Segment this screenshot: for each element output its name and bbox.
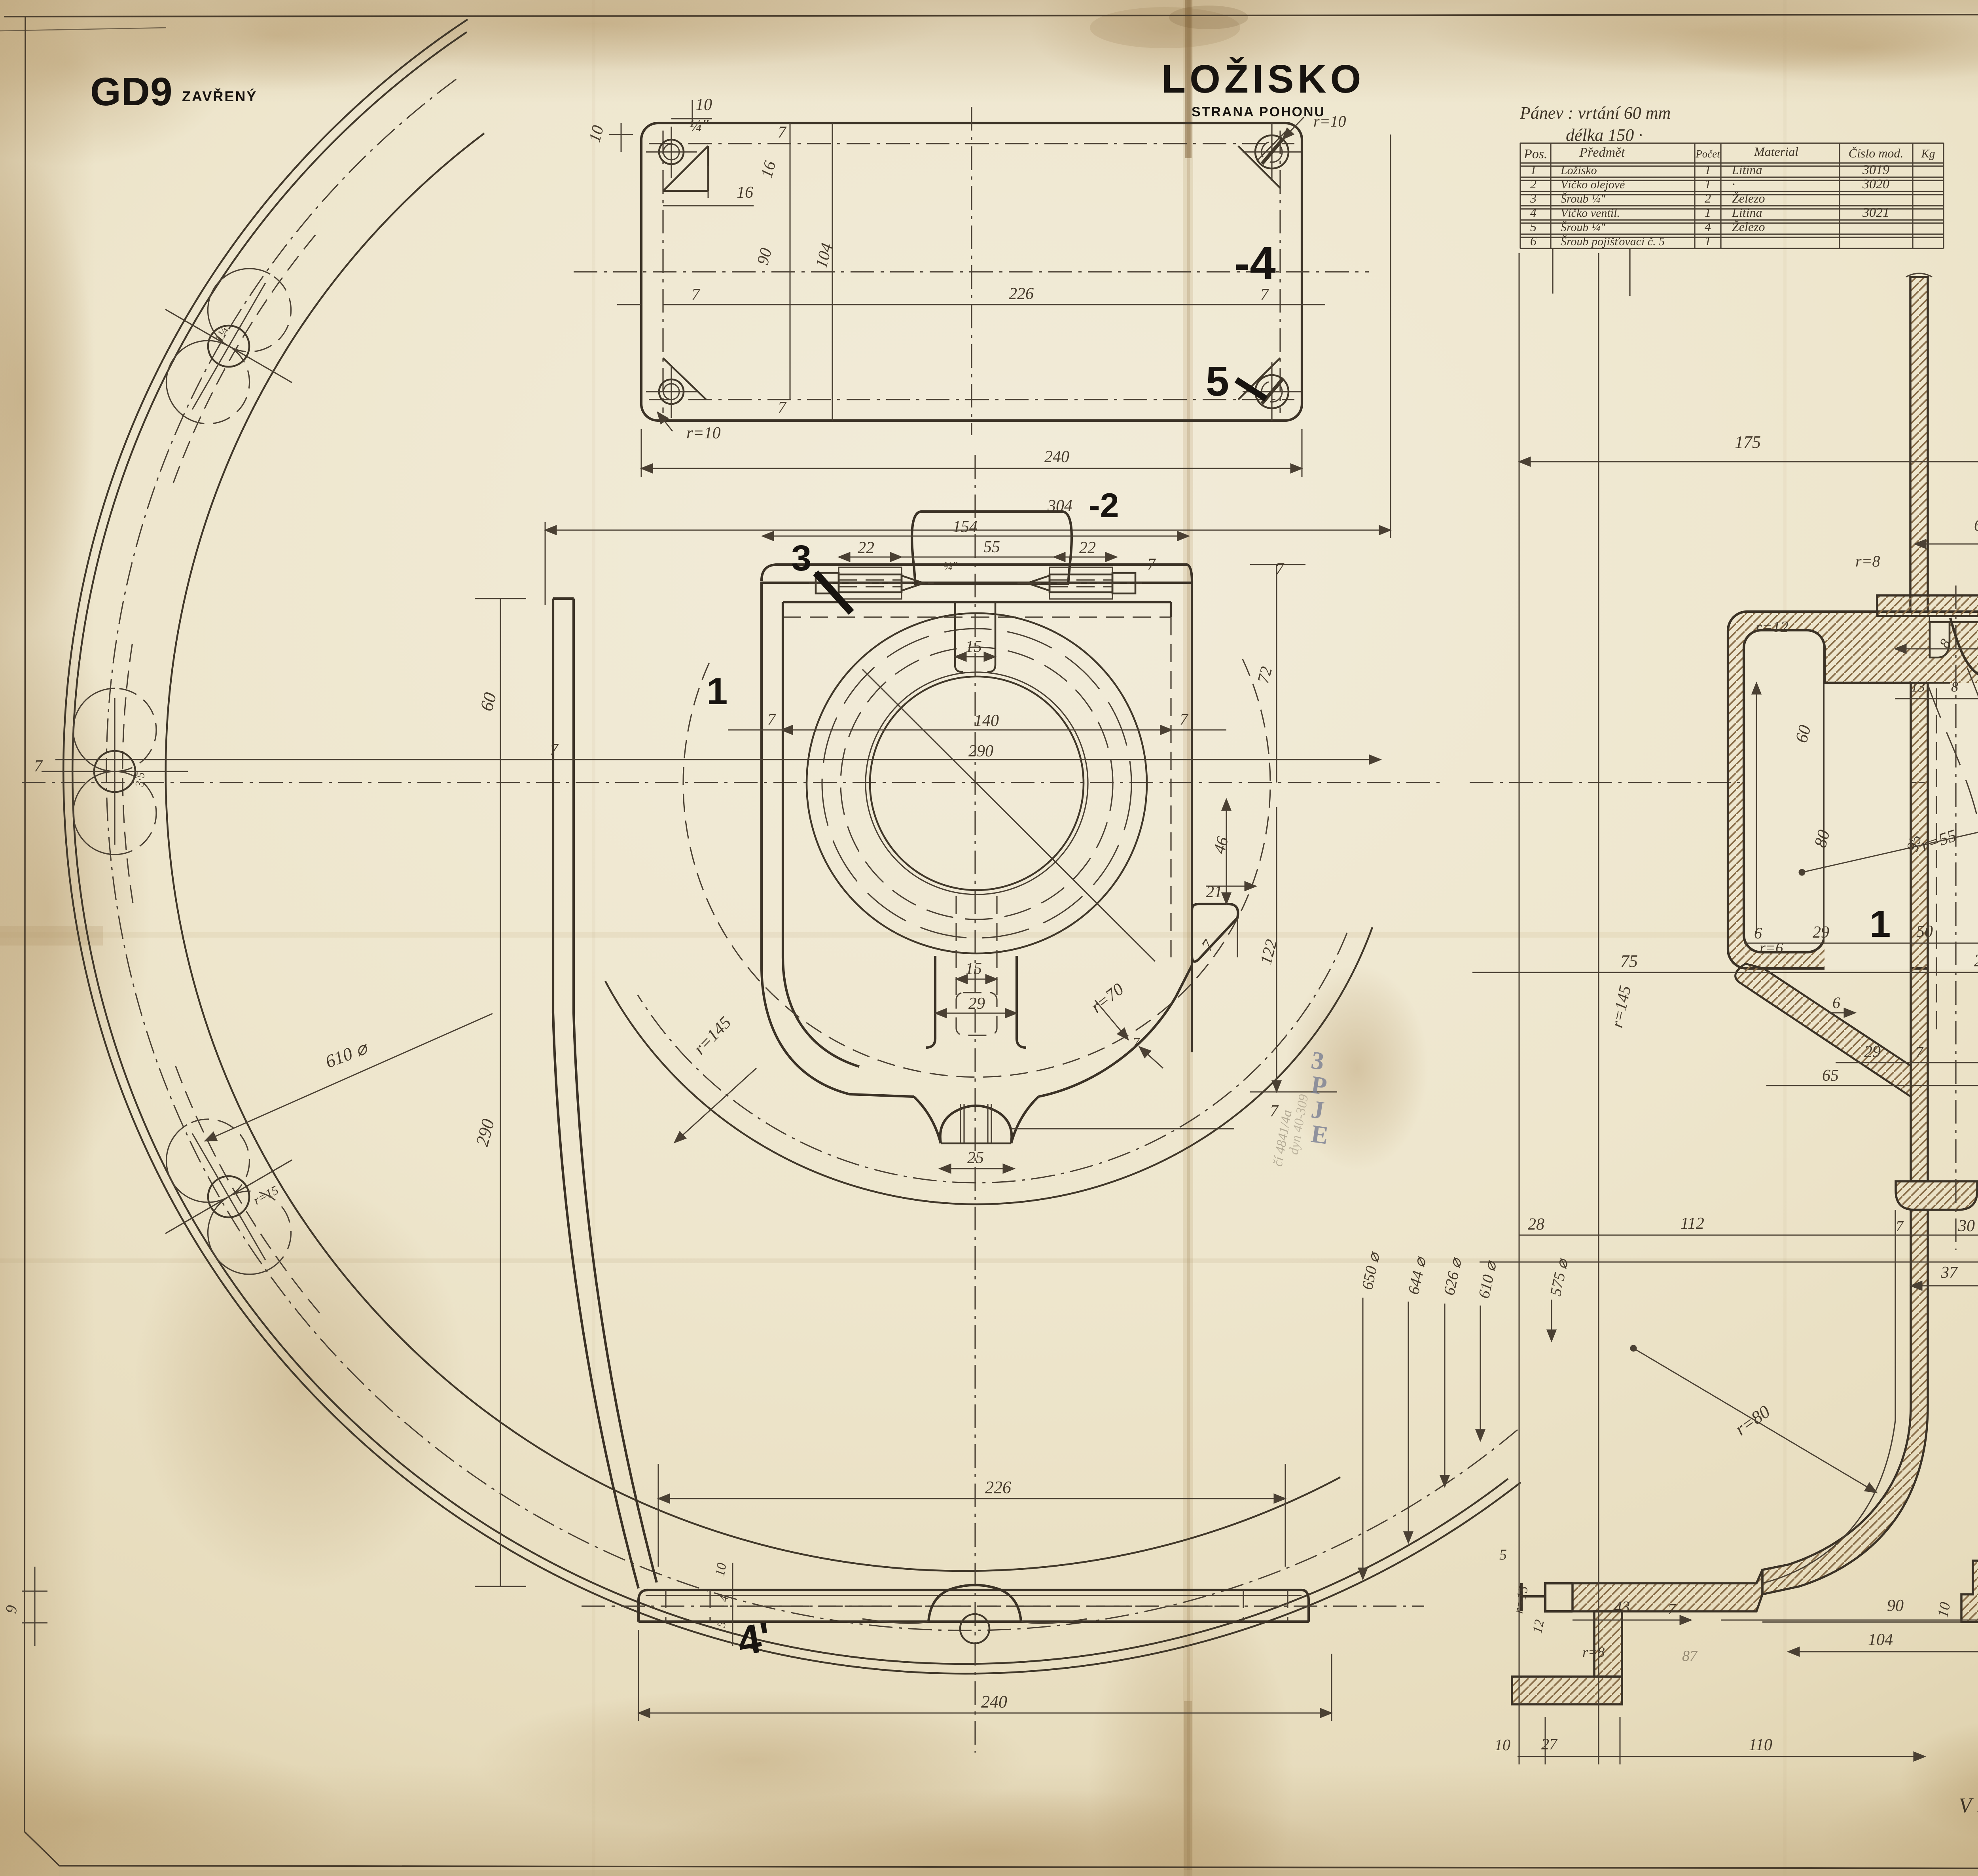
svg-text:¼″: ¼″ <box>689 117 709 135</box>
svg-text:29: 29 <box>1813 923 1829 942</box>
svg-text:5: 5 <box>1499 1546 1507 1563</box>
svg-text:GD9: GD9 <box>90 70 173 114</box>
svg-text:7: 7 <box>1275 560 1285 578</box>
svg-text:4: 4 <box>1705 220 1711 234</box>
svg-text:6: 6 <box>1530 234 1537 248</box>
svg-text:29: 29 <box>968 995 985 1013</box>
svg-text:175: 175 <box>1735 432 1761 452</box>
svg-text:Počet: Počet <box>1695 148 1720 160</box>
svg-text:LOŽISKO: LOŽISKO <box>1161 57 1365 101</box>
svg-text:1: 1 <box>1705 205 1711 220</box>
svg-text:délka 150 ·: délka 150 · <box>1566 125 1643 145</box>
svg-text:10: 10 <box>1495 1736 1510 1754</box>
svg-text:Předmět: Předmět <box>1579 145 1626 160</box>
svg-text:Pos.: Pos. <box>1523 147 1548 161</box>
svg-text:-4: -4 <box>1234 237 1276 290</box>
svg-text:61: 61 <box>1974 517 1978 535</box>
svg-text:104: 104 <box>1868 1631 1893 1649</box>
svg-text:90: 90 <box>1887 1597 1904 1615</box>
svg-text:1: 1 <box>1705 163 1711 177</box>
svg-text:¼″: ¼″ <box>944 559 958 572</box>
svg-text:25: 25 <box>967 1149 984 1167</box>
svg-text:1: 1 <box>1870 903 1891 945</box>
svg-text:10: 10 <box>695 96 712 114</box>
svg-text:226: 226 <box>1009 285 1034 303</box>
svg-text:Pánev : vrtání 60 mm: Pánev : vrtání 60 mm <box>1519 103 1671 123</box>
svg-text:Ložisko: Ložisko <box>1560 164 1597 177</box>
svg-text:3019: 3019 <box>1862 163 1889 177</box>
svg-text:28: 28 <box>1528 1215 1544 1234</box>
svg-text:226: 226 <box>985 1478 1011 1497</box>
svg-text:16: 16 <box>737 184 753 202</box>
svg-text:STRANA POHONU: STRANA POHONU <box>1192 104 1325 119</box>
svg-text:55: 55 <box>983 538 1000 556</box>
svg-text:3021: 3021 <box>1862 205 1889 220</box>
svg-text:Šroub ¼″: Šroub ¼″ <box>1561 221 1606 234</box>
svg-text:50: 50 <box>1916 923 1933 941</box>
svg-text:7: 7 <box>1668 1601 1676 1618</box>
svg-text:Litina: Litina <box>1732 163 1762 177</box>
svg-text:3020: 3020 <box>1862 177 1889 191</box>
svg-text:110: 110 <box>1749 1736 1772 1754</box>
svg-text:43: 43 <box>1614 1598 1630 1616</box>
svg-text:290: 290 <box>968 742 993 760</box>
svg-text:1: 1 <box>1705 234 1711 248</box>
svg-text:7: 7 <box>1180 711 1189 729</box>
svg-text:Víčko ventil.: Víčko ventil. <box>1561 207 1620 220</box>
svg-text:3·5: 3·5 <box>133 771 147 788</box>
svg-text:140: 140 <box>974 712 999 730</box>
svg-text:240: 240 <box>981 1692 1007 1711</box>
svg-text:Šroub pojišťovací č. 5: Šroub pojišťovací č. 5 <box>1561 235 1665 248</box>
svg-text:87: 87 <box>1682 1648 1698 1664</box>
svg-text:27: 27 <box>1541 1735 1558 1753</box>
svg-text:7: 7 <box>34 757 43 775</box>
svg-text:29: 29 <box>1864 1043 1881 1061</box>
svg-text:7: 7 <box>778 123 787 142</box>
svg-text:7: 7 <box>1270 1102 1279 1120</box>
svg-text:22: 22 <box>858 539 874 557</box>
svg-text:200: 200 <box>1974 951 1978 970</box>
svg-text:r=8: r=8 <box>1855 552 1880 570</box>
svg-text:ZAVŘENÝ: ZAVŘENÝ <box>182 88 257 104</box>
svg-text:Víčko olejové: Víčko olejové <box>1561 178 1626 191</box>
svg-text:75: 75 <box>1620 951 1638 971</box>
svg-text:6: 6 <box>1832 994 1840 1012</box>
svg-text:240: 240 <box>1044 448 1069 466</box>
svg-text:1: 1 <box>1530 163 1537 177</box>
svg-text:65: 65 <box>1822 1067 1839 1085</box>
svg-text:4: 4 <box>1530 205 1537 220</box>
svg-text:Železo: Železo <box>1732 220 1765 234</box>
svg-text:r=12: r=12 <box>1756 618 1789 636</box>
svg-text:2: 2 <box>1530 177 1537 191</box>
svg-text:Šroub ¼″: Šroub ¼″ <box>1561 192 1606 205</box>
svg-text:1: 1 <box>707 670 728 713</box>
svg-text:3: 3 <box>1530 191 1537 205</box>
svg-text:2: 2 <box>1705 191 1711 205</box>
svg-text:1: 1 <box>1705 177 1711 191</box>
svg-text:21: 21 <box>1206 883 1222 901</box>
svg-text:10: 10 <box>712 1561 729 1577</box>
svg-text:Železo: Železo <box>1732 191 1765 205</box>
svg-text:7: 7 <box>550 741 559 759</box>
svg-text:5: 5 <box>1530 220 1537 234</box>
svg-text:7: 7 <box>778 399 787 417</box>
svg-text:7: 7 <box>1915 1044 1924 1061</box>
svg-text:7: 7 <box>1147 555 1156 574</box>
svg-text:r=6: r=6 <box>1760 940 1783 956</box>
svg-text:Material: Material <box>1754 144 1798 159</box>
svg-text:13: 13 <box>1911 679 1925 695</box>
svg-text:r=8: r=8 <box>1582 1644 1605 1660</box>
svg-text:154: 154 <box>953 518 978 536</box>
svg-text:7: 7 <box>1896 1218 1904 1235</box>
svg-text:15: 15 <box>965 638 982 656</box>
svg-text:Kg: Kg <box>1921 147 1935 160</box>
svg-text:8: 8 <box>1951 679 1958 695</box>
svg-text:30: 30 <box>1958 1217 1975 1235</box>
svg-text:112: 112 <box>1681 1215 1704 1233</box>
svg-text:-2: -2 <box>1089 487 1119 525</box>
svg-text:Litina: Litina <box>1732 205 1762 220</box>
svg-text:22: 22 <box>1079 539 1096 557</box>
svg-text:7: 7 <box>1132 1035 1141 1051</box>
svg-text:37: 37 <box>1940 1264 1958 1282</box>
svg-text:5: 5 <box>1206 358 1229 405</box>
svg-text:15: 15 <box>965 960 982 978</box>
svg-text:Číslo mod.: Číslo mod. <box>1849 146 1904 160</box>
svg-text:7: 7 <box>692 286 701 304</box>
svg-text:·: · <box>1732 177 1735 191</box>
svg-text:7: 7 <box>767 711 777 729</box>
svg-text:r=10: r=10 <box>1313 112 1346 130</box>
svg-text:3: 3 <box>791 538 811 578</box>
svg-text:r=10: r=10 <box>686 424 721 442</box>
